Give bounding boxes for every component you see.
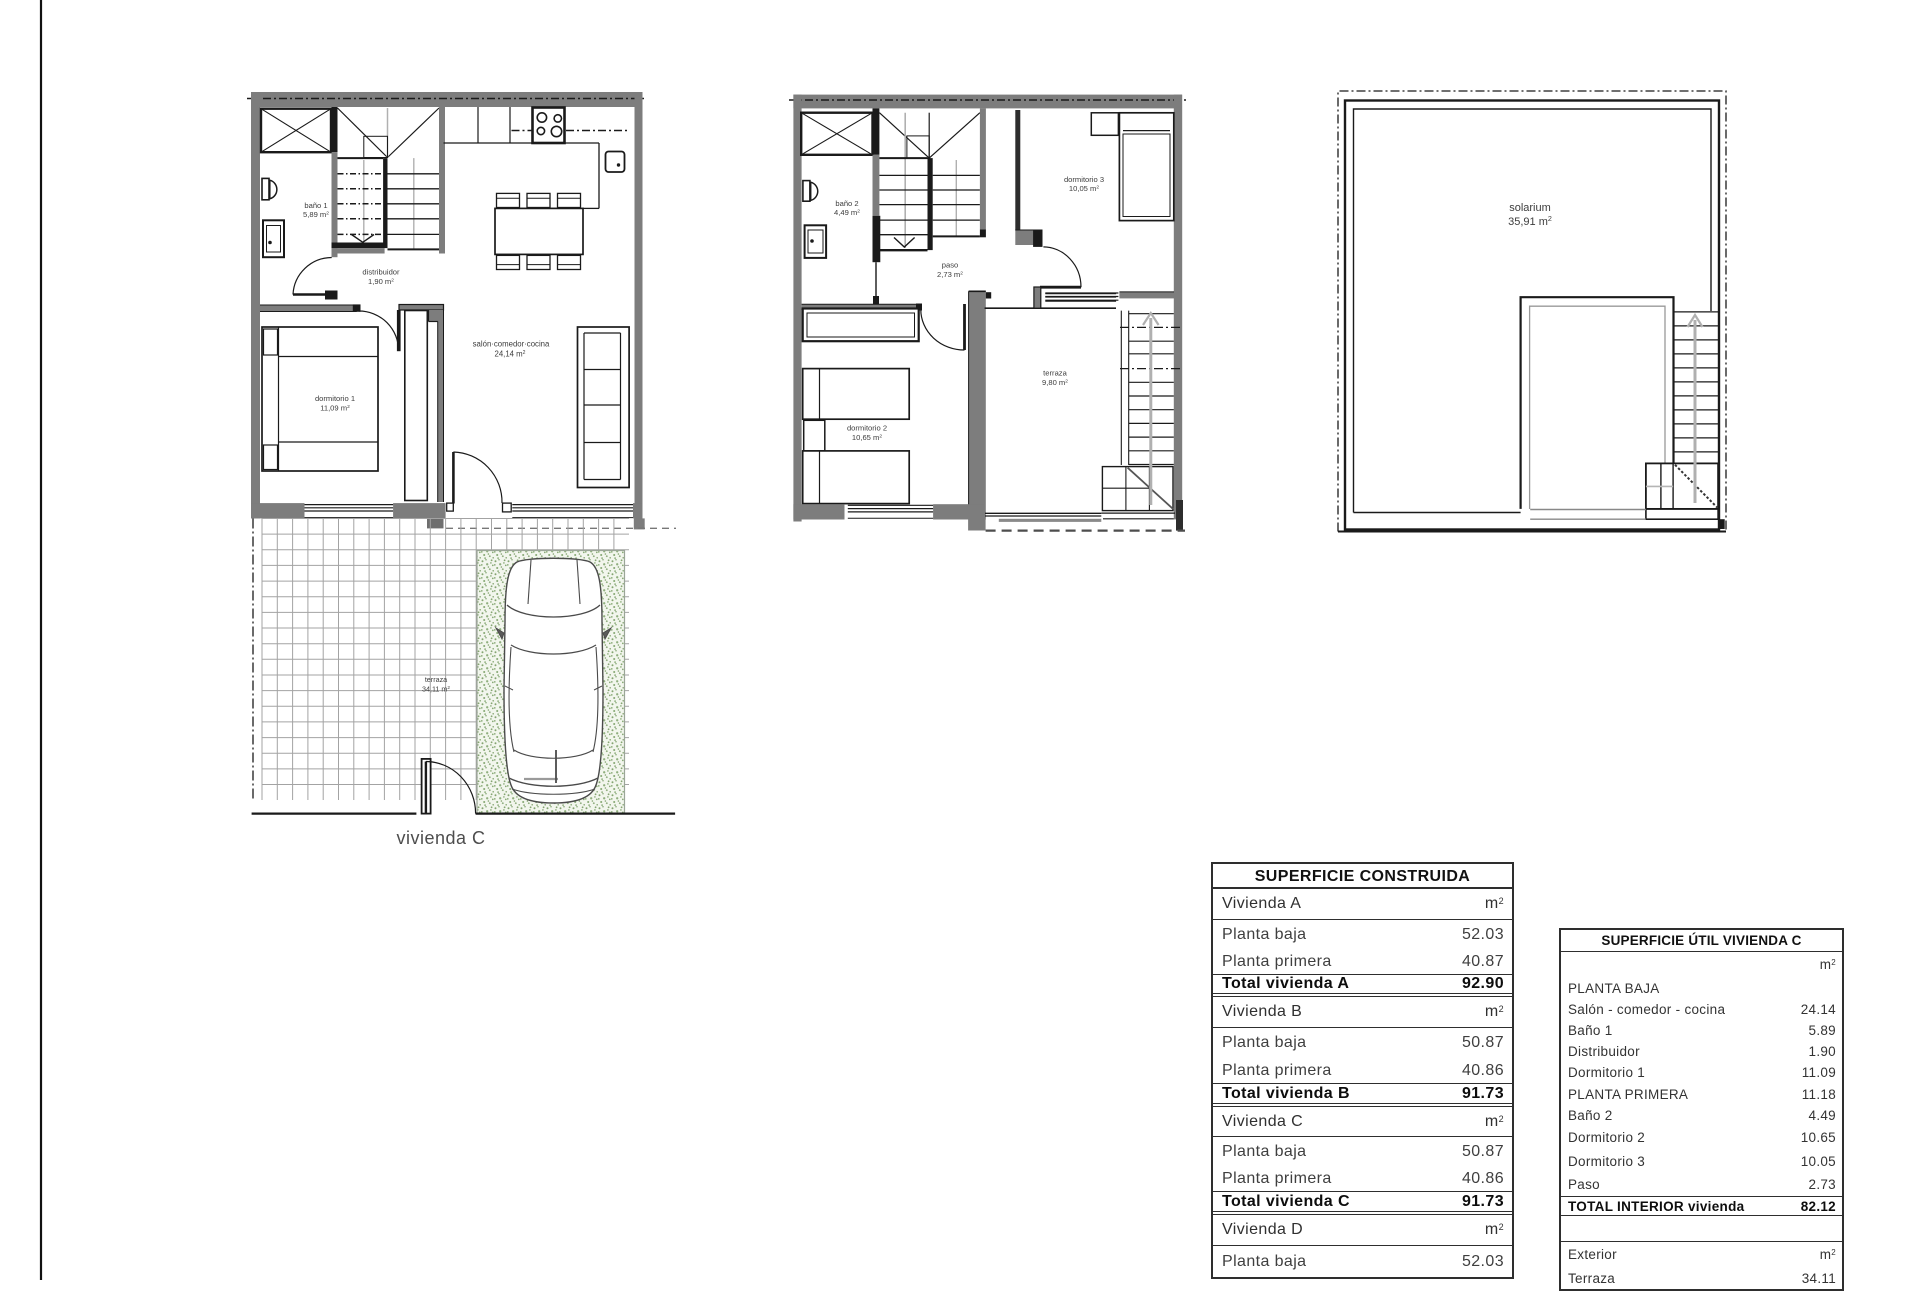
svg-text:1,90 m2: 1,90 m2 xyxy=(368,277,394,286)
svg-text:2,73 m2: 2,73 m2 xyxy=(937,270,963,279)
svg-text:paso: paso xyxy=(942,261,958,270)
svg-text:dormitorio 1: dormitorio 1 xyxy=(315,394,355,403)
svg-text:34,11 m2: 34,11 m2 xyxy=(422,685,450,694)
svg-text:4,49 m2: 4,49 m2 xyxy=(834,208,860,217)
svg-text:distribuidor: distribuidor xyxy=(362,268,400,277)
svg-text:9,80 m2: 9,80 m2 xyxy=(1042,378,1068,387)
svg-text:11,09 m2: 11,09 m2 xyxy=(320,404,350,413)
svg-text:solarium: solarium xyxy=(1509,202,1551,214)
svg-text:baño 1: baño 1 xyxy=(304,201,327,210)
svg-text:vivienda C: vivienda C xyxy=(396,828,485,848)
svg-text:terraza: terraza xyxy=(425,675,447,684)
svg-text:5,89 m2: 5,89 m2 xyxy=(303,210,329,219)
svg-text:dormitorio 3: dormitorio 3 xyxy=(1064,175,1104,184)
svg-text:baño 2: baño 2 xyxy=(835,199,858,208)
svg-text:salón·comedor·cocina: salón·comedor·cocina xyxy=(473,340,550,349)
svg-text:10,05 m2: 10,05 m2 xyxy=(1069,184,1099,193)
svg-text:dormitorio 2: dormitorio 2 xyxy=(847,424,887,433)
svg-text:24,14 m2: 24,14 m2 xyxy=(494,350,525,359)
svg-text:35,91 m2: 35,91 m2 xyxy=(1508,214,1552,228)
svg-text:terraza: terraza xyxy=(1043,369,1067,378)
svg-text:10,65 m2: 10,65 m2 xyxy=(852,433,882,442)
